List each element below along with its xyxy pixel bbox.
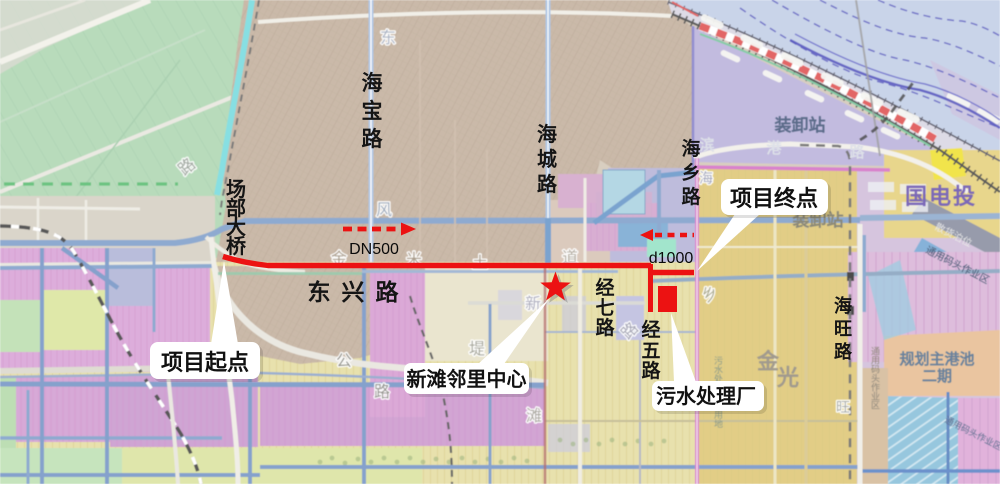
svg-text:DN500: DN500 [349, 241, 399, 258]
svg-text:路: 路 [849, 143, 865, 161]
svg-text:二期: 二期 [922, 367, 952, 385]
svg-text:旺: 旺 [834, 319, 852, 339]
svg-text:项目起点: 项目起点 [161, 350, 249, 375]
svg-text:通用码头作业区: 通用码头作业区 [870, 346, 880, 409]
svg-text:兴: 兴 [342, 279, 365, 305]
svg-text:海: 海 [834, 295, 852, 316]
svg-text:路: 路 [641, 359, 661, 382]
svg-text:五: 五 [641, 341, 660, 362]
svg-text:路: 路 [537, 172, 558, 196]
svg-text:光: 光 [776, 365, 799, 390]
svg-text:桥: 桥 [226, 235, 247, 258]
svg-text:d1000: d1000 [649, 250, 694, 267]
svg-text:港: 港 [766, 139, 782, 157]
svg-text:滨: 滨 [699, 136, 714, 154]
svg-text:宝: 宝 [362, 99, 383, 123]
svg-text:污水处理厂: 污水处理厂 [656, 384, 756, 408]
svg-text:堤: 堤 [469, 340, 485, 358]
svg-text:经: 经 [595, 276, 614, 299]
svg-text:旺: 旺 [836, 399, 850, 415]
svg-text:装卸站: 装卸站 [774, 115, 826, 135]
svg-text:七: 七 [595, 297, 614, 319]
svg-text:经: 经 [641, 318, 660, 341]
svg-text:国电投: 国电投 [905, 184, 977, 209]
svg-text:路: 路 [374, 383, 390, 401]
svg-text:海: 海 [537, 122, 557, 146]
svg-text:海: 海 [699, 170, 713, 186]
svg-text:路: 路 [681, 185, 701, 208]
svg-text:海: 海 [681, 137, 700, 160]
svg-text:滩: 滩 [526, 407, 542, 425]
svg-text:路: 路 [376, 279, 400, 305]
svg-text:路: 路 [362, 127, 384, 151]
svg-text:乡: 乡 [681, 162, 700, 184]
svg-text:新滩邻里中心: 新滩邻里中心 [407, 367, 527, 391]
svg-text:东: 东 [380, 29, 396, 47]
svg-text:路: 路 [834, 341, 853, 362]
svg-text:规划主港池: 规划主港池 [899, 350, 974, 368]
svg-text:路: 路 [595, 316, 615, 339]
svg-text:风: 风 [376, 202, 392, 219]
svg-text:海: 海 [362, 71, 383, 95]
svg-text:东: 东 [308, 279, 331, 305]
svg-text:城: 城 [537, 147, 557, 171]
svg-text:公: 公 [336, 353, 352, 370]
svg-text:项目终点: 项目终点 [730, 186, 818, 211]
